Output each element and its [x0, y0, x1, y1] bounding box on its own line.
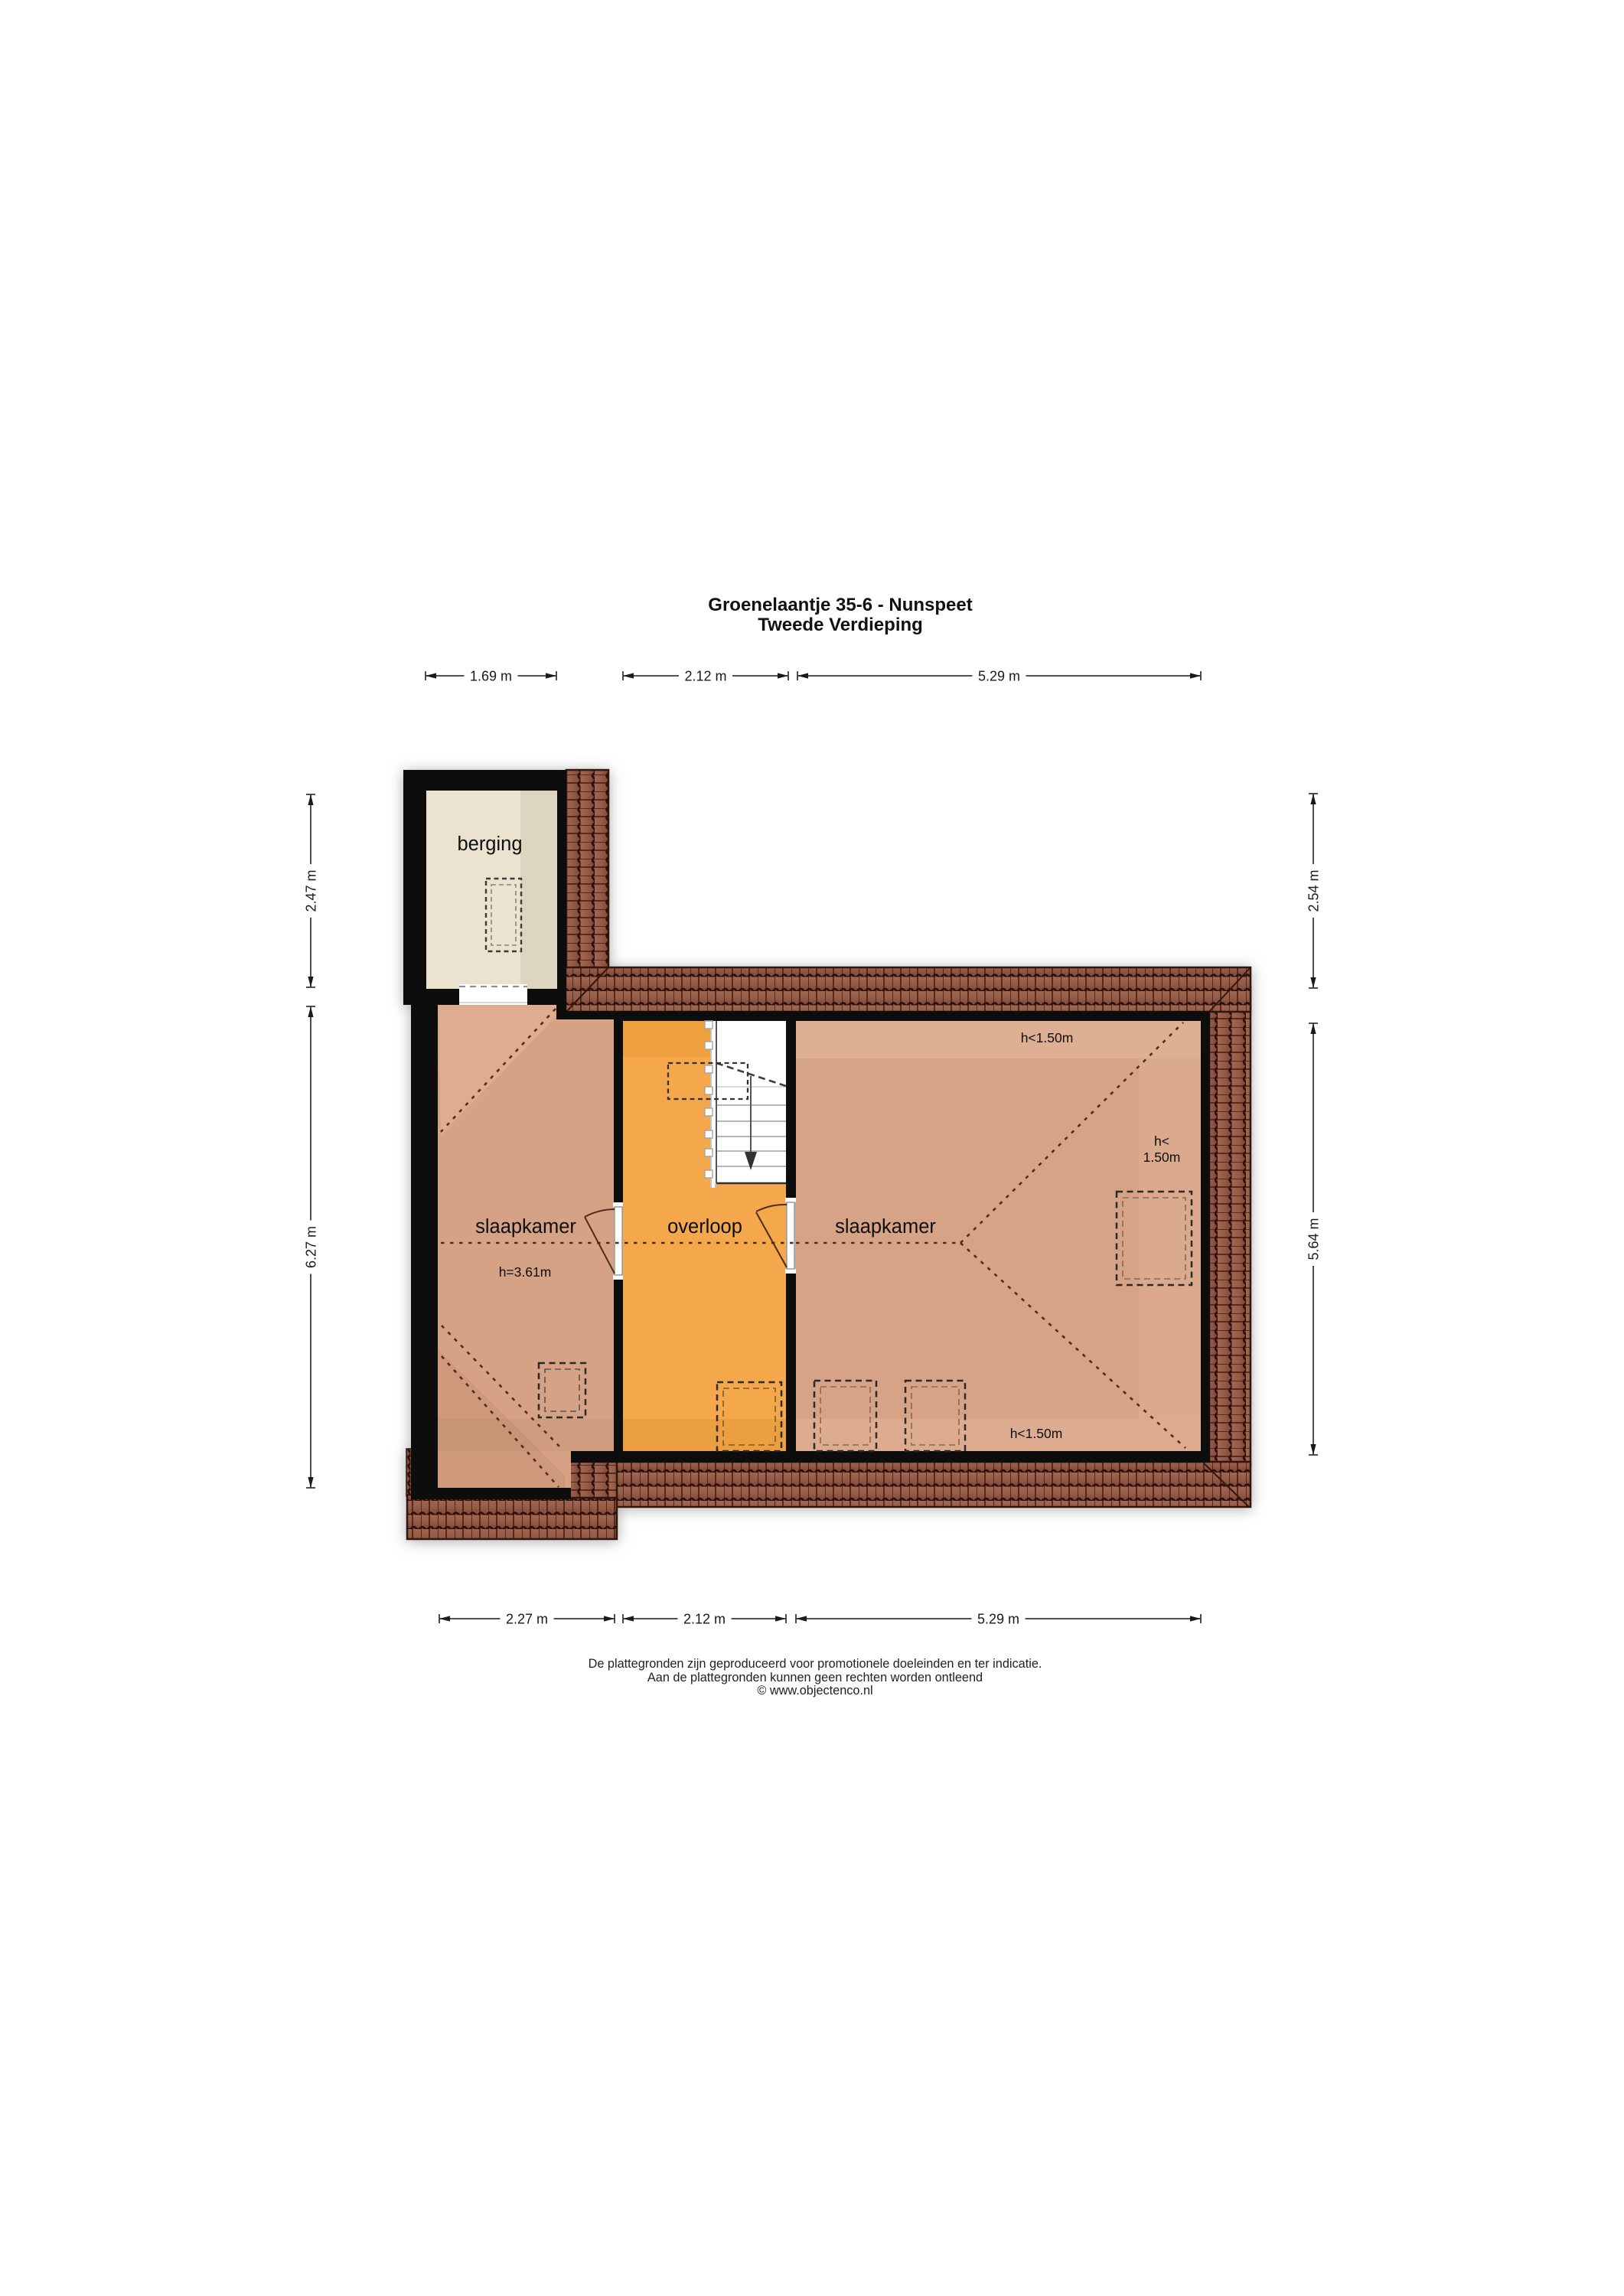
svg-text:2.47 m: 2.47 m: [304, 869, 319, 912]
svg-text:berging: berging: [457, 833, 522, 855]
svg-text:2.54 m: 2.54 m: [1306, 869, 1322, 912]
svg-text:h=3.61m: h=3.61m: [499, 1264, 552, 1280]
svg-text:6.27 m: 6.27 m: [304, 1226, 319, 1268]
svg-text:Aan de plattegronden kunnen ge: Aan de plattegronden kunnen geen rechten…: [647, 1671, 983, 1684]
svg-text:De plattegronden zijn geproduc: De plattegronden zijn geproduceerd voor …: [589, 1657, 1042, 1671]
svg-text:2.12 m: 2.12 m: [683, 1612, 726, 1627]
svg-text:1.50m: 1.50m: [1143, 1150, 1181, 1165]
svg-text:2.27 m: 2.27 m: [506, 1612, 548, 1627]
svg-text:2.12 m: 2.12 m: [684, 669, 726, 684]
svg-text:slaapkamer: slaapkamer: [475, 1216, 576, 1238]
svg-text:© www.objectenco.nl: © www.objectenco.nl: [757, 1684, 872, 1698]
svg-text:5.29 m: 5.29 m: [978, 669, 1020, 684]
svg-text:overloop: overloop: [667, 1216, 742, 1238]
svg-text:slaapkamer: slaapkamer: [835, 1216, 936, 1238]
svg-text:Tweede Verdieping: Tweede Verdieping: [758, 615, 923, 635]
svg-text:5.29 m: 5.29 m: [977, 1612, 1019, 1627]
svg-text:5.64 m: 5.64 m: [1306, 1218, 1322, 1260]
svg-text:Groenelaantje 35-6 - Nunspeet: Groenelaantje 35-6 - Nunspeet: [708, 595, 972, 615]
svg-text:h<1.50m: h<1.50m: [1010, 1426, 1063, 1441]
svg-text:h<: h<: [1154, 1133, 1169, 1149]
svg-text:h<1.50m: h<1.50m: [1021, 1030, 1074, 1045]
svg-text:1.69 m: 1.69 m: [470, 669, 512, 684]
